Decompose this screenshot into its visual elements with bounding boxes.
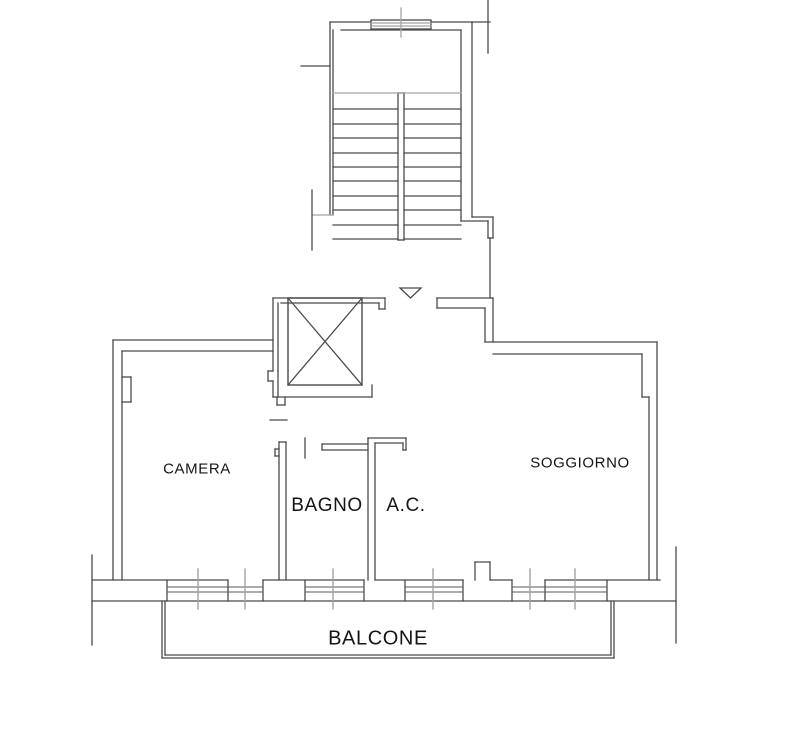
room-label-bagno: BAGNO xyxy=(291,495,363,517)
floor-plan-svg xyxy=(0,0,795,737)
room-label-ac: A.C. xyxy=(386,495,425,517)
room-label-soggiorno: SOGGIORNO xyxy=(530,455,630,472)
room-label-camera: CAMERA xyxy=(163,461,231,478)
floor-plan-page: CAMERA BAGNO A.C. SOGGIORNO BALCONE xyxy=(0,0,795,737)
room-label-balcone: BALCONE xyxy=(328,628,428,651)
